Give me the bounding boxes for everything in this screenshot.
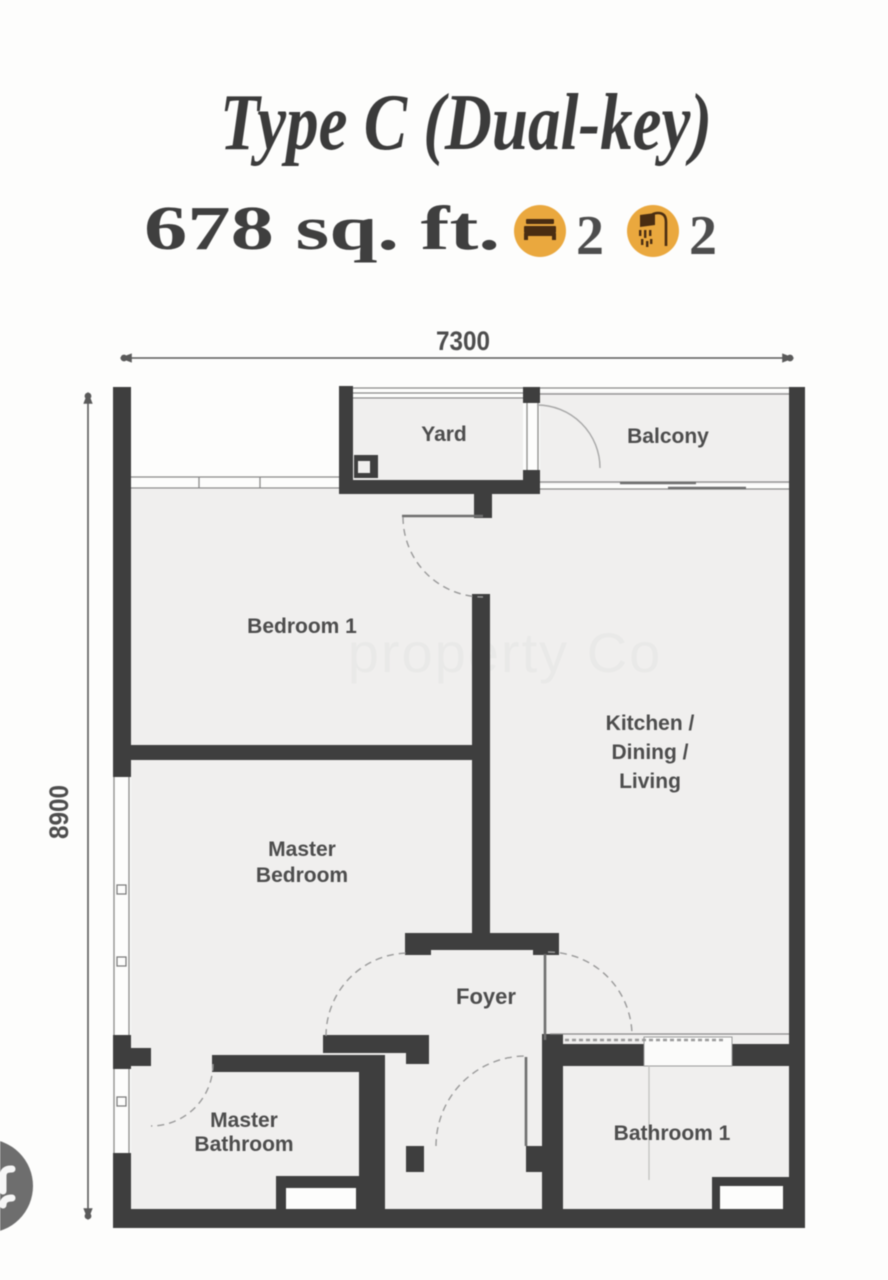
svg-text:property Co: property Co bbox=[348, 621, 663, 684]
svg-text:Bathroom: Bathroom bbox=[194, 1133, 293, 1156]
svg-text:Master: Master bbox=[268, 838, 336, 861]
svg-text:Bathroom 1: Bathroom 1 bbox=[614, 1122, 731, 1145]
svg-text:678 sq. ft.: 678 sq. ft. bbox=[144, 195, 500, 263]
svg-text:7300: 7300 bbox=[436, 326, 490, 356]
svg-text:8900: 8900 bbox=[44, 785, 74, 839]
svg-text:Bedroom 1: Bedroom 1 bbox=[247, 615, 357, 638]
svg-text:Bedroom: Bedroom bbox=[256, 864, 348, 887]
svg-text:Dining /: Dining / bbox=[612, 741, 689, 764]
svg-text:Yard: Yard bbox=[421, 423, 467, 446]
svg-text:Foyer: Foyer bbox=[456, 984, 516, 1009]
svg-text:Balcony: Balcony bbox=[627, 425, 709, 448]
svg-text:Type C (Dual-key): Type C (Dual-key) bbox=[220, 79, 712, 167]
svg-text:Master: Master bbox=[210, 1109, 278, 1132]
svg-text:Kitchen /: Kitchen / bbox=[606, 712, 695, 735]
svg-text:2: 2 bbox=[689, 205, 717, 267]
svg-text:2: 2 bbox=[576, 205, 604, 267]
svg-text:Living: Living bbox=[619, 770, 681, 793]
